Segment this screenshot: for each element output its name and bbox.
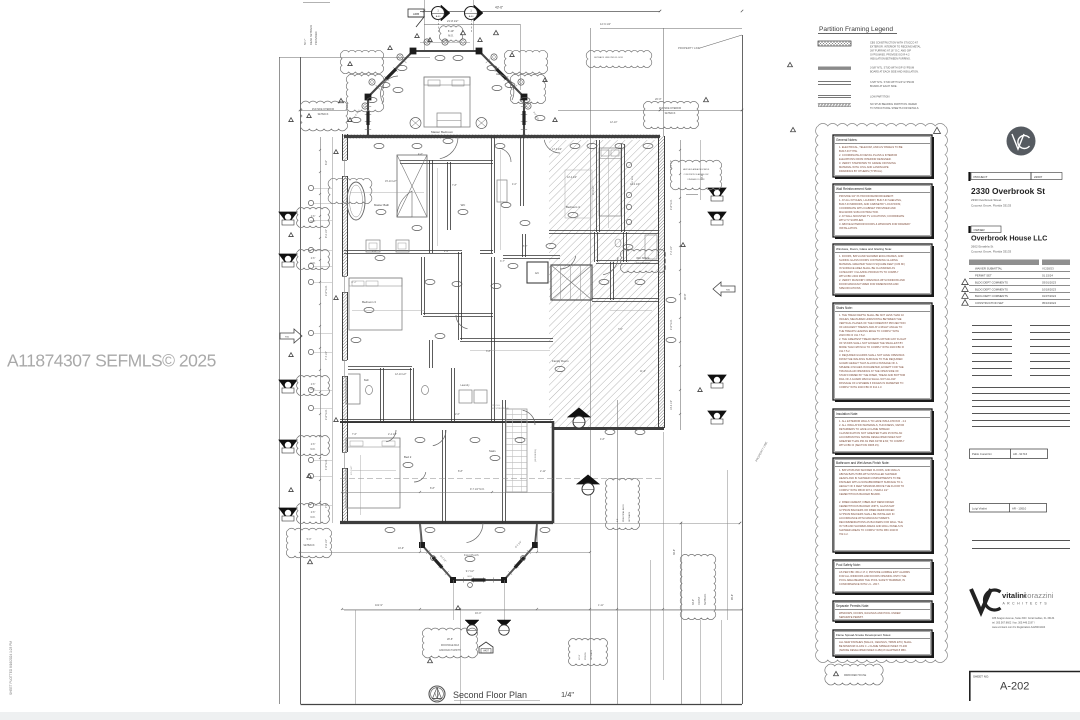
svg-text:SETBACK: SETBACK bbox=[665, 112, 676, 115]
svg-text:M.O.: M.O. bbox=[311, 263, 316, 265]
svg-text:2'-6": 2'-6" bbox=[311, 512, 316, 514]
svg-text:SHOWER AREAS TO COMPLY WITH FB: SHOWER AREAS TO COMPLY WITH FBC 2020 R bbox=[839, 528, 898, 532]
svg-text:BLDG DEPT COMMENTS: BLDG DEPT COMMENTS bbox=[975, 294, 1008, 298]
svg-text:36'-8": 36'-8" bbox=[683, 293, 687, 300]
svg-text:HEIGHT OF 6 FEET MINIMUM ABOVE: HEIGHT OF 6 FEET MINIMUM ABOVE THE FLOOR… bbox=[839, 484, 904, 488]
svg-text:10/18/2023: 10/18/2023 bbox=[1042, 287, 1056, 291]
svg-text:INSTALLATION.: INSTALLATION. bbox=[839, 226, 858, 230]
svg-text:M.O.: M.O. bbox=[311, 449, 316, 451]
svg-text:REC SPACE: REC SPACE bbox=[636, 257, 650, 260]
svg-text:GYPSUM BD. PROVIDE ISO R-4.2: GYPSUM BD. PROVIDE ISO R-4.2 bbox=[870, 54, 910, 57]
svg-text:FINISHED FLOOR: FINISHED FLOOR bbox=[688, 179, 705, 181]
svg-text:12'-9 1/2": 12'-9 1/2" bbox=[600, 22, 611, 26]
svg-text:Overbrook House LLC: Overbrook House LLC bbox=[971, 234, 1047, 243]
svg-text:W/O STRUCTURAL: W/O STRUCTURAL bbox=[491, 407, 510, 410]
svg-text:FRONTAGE MAX: FRONTAGE MAX bbox=[441, 644, 460, 647]
svg-text:CLASSIFICATION NOT GREATER THA: CLASSIFICATION NOT GREATER THAN 25 WITH … bbox=[839, 431, 902, 435]
svg-text:STAIR FORMED BY THE RISER, TR: STAIR FORMED BY THE RISER, TREAD AND BOT… bbox=[839, 373, 905, 377]
svg-text:WITH FBC R (SECTION R905.15).: WITH FBC R (SECTION R905.15). bbox=[839, 443, 880, 447]
svg-text:AR - 91716: AR - 91716 bbox=[1013, 452, 1028, 456]
svg-text:tel. 305.567.8602 / fax. 305: tel. 305.567.8602 / fax. 305.446.2197 / bbox=[992, 622, 1035, 625]
svg-text:CEMENTITIOUS BACKER BOARD.: CEMENTITIOUS BACKER BOARD. bbox=[839, 492, 881, 496]
svg-text:5'-7": 5'-7" bbox=[610, 260, 615, 263]
svg-text:VC/28/23: VC/28/23 bbox=[1042, 267, 1054, 271]
svg-text:Pool Safety Note:: Pool Safety Note: bbox=[836, 563, 861, 567]
svg-text:3/8" FURRING AT 16" O.C. AND G: 3/8" FURRING AT 16" O.C. AND GIP bbox=[870, 50, 911, 53]
svg-text:Separate Permits Note:: Separate Permits Note: bbox=[836, 604, 869, 608]
svg-text:VERTICAL PLANES OF THE FOREMOS: VERTICAL PLANES OF THE FOREMOST PROJECTI… bbox=[839, 321, 906, 325]
svg-text:PROVIDE 3/4" PLYWOOD REINFORCE: PROVIDE 3/4" PLYWOOD REINFORCEMENT: bbox=[839, 194, 894, 198]
svg-text:MATERIAL WITH CIVIL AND LANDSC: MATERIAL WITH CIVIL AND LANDSCAPE bbox=[839, 165, 889, 169]
svg-text:CONSTRUCTION SET: CONSTRUCTION SET bbox=[975, 301, 1004, 305]
svg-text:GYPSUM BACKERS OR FIBER-REINFO: GYPSUM BACKERS OR FIBER-REINFORCED bbox=[839, 508, 894, 512]
svg-text:7'-8": 7'-8" bbox=[452, 184, 457, 187]
svg-text:9'-7 1/2" M.O.: 9'-7 1/2" M.O. bbox=[470, 488, 485, 491]
svg-text:BUILT-IN MIRRORS, AND CABINET: BUILT-IN MIRRORS, AND CABINETRY LOCATION… bbox=[839, 202, 901, 206]
svg-text:2'-6" M.O.: 2'-6" M.O. bbox=[325, 409, 328, 420]
svg-text:2'-4 1/2": 2'-4 1/2" bbox=[388, 433, 397, 436]
svg-text:A R C H I T E C T S: A R C H I T E C T S bbox=[1003, 602, 1048, 606]
svg-text:CATEGORY II GLAZING PRODUCTS T: CATEGORY II GLAZING PRODUCTS TO COMPLY bbox=[839, 270, 899, 274]
svg-text:SETBACK: SETBACK bbox=[628, 511, 631, 522]
svg-text:SETBACK: SETBACK bbox=[303, 544, 315, 547]
svg-text:MATERIAL GREATER THAN 9 SQUARE: MATERIAL GREATER THAN 9 SQUARE FEET (0.8… bbox=[839, 262, 905, 266]
svg-text:30'-0": 30'-0" bbox=[692, 599, 695, 605]
svg-text:M.O.: M.O. bbox=[311, 389, 316, 391]
svg-text:PERMIT SET: PERMIT SET bbox=[975, 274, 992, 278]
svg-text:2. AT WALL MOUNTED TV LOCATI: 2. AT WALL MOUNTED TV LOCATIONS; COORDIN… bbox=[839, 214, 905, 218]
svg-text:01.15/24: 01.15/24 bbox=[1042, 274, 1053, 278]
svg-text:PROJECT: PROJECT bbox=[974, 175, 988, 179]
svg-text:2330 Overbrook Street: 2330 Overbrook Street bbox=[971, 198, 1002, 202]
svg-text:36'-8": 36'-8" bbox=[673, 549, 676, 555]
svg-text:WINDOWS, DOORS, RAILINGS AND P: WINDOWS, DOORS, RAILINGS AND POOL UNDER bbox=[839, 611, 901, 615]
svg-text:6'-6": 6'-6" bbox=[325, 160, 328, 165]
svg-text:A-40: A-40 bbox=[436, 15, 441, 18]
svg-text:Master Bath: Master Bath bbox=[374, 203, 390, 207]
svg-text:SETBACK: SETBACK bbox=[318, 113, 329, 116]
svg-text:Flame Spread-Smoke Development: Flame Spread-Smoke Development Notes: bbox=[836, 633, 891, 637]
svg-text:15'-8 1/2": 15'-8 1/2" bbox=[593, 186, 595, 195]
svg-text:BE MINIMUM CLASS C + FLAME S: BE MINIMUM CLASS C + FLAME SPREAD INDEX … bbox=[839, 644, 908, 648]
svg-text:50'-7": 50'-7" bbox=[303, 38, 307, 45]
svg-text:www.vcmiami.com FL Registratio: www.vcmiami.com FL Registration AA260014… bbox=[992, 626, 1046, 629]
svg-text:1/4": 1/4" bbox=[561, 690, 574, 699]
svg-text:CONFORMANCE WITH U.L. 2017.: CONFORMANCE WITH U.L. 2017. bbox=[839, 582, 880, 586]
svg-text:Bedroom 3: Bedroom 3 bbox=[362, 300, 376, 304]
svg-text:01/07/2024: 01/07/2024 bbox=[1042, 294, 1056, 298]
svg-text:3-5/8" MTL. STUD WITH GIP GYPS: 3-5/8" MTL. STUD WITH GIP GYPSUM bbox=[870, 81, 914, 84]
svg-text:13'-2 1/2": 13'-2 1/2" bbox=[351, 466, 353, 475]
svg-text:Bed 2: Bed 2 bbox=[404, 455, 412, 459]
svg-text:12'-4 1/2": 12'-4 1/2" bbox=[567, 176, 577, 179]
svg-text:BOARD AT EACH SIDE.: BOARD AT EACH SIDE. bbox=[870, 85, 898, 88]
svg-text:2330 Overbrook St: 2330 Overbrook St bbox=[971, 186, 1045, 196]
svg-text:2. VERIFY MASONRY OPENINGS W: 2. VERIFY MASONRY OPENINGS WITH WINDOW A… bbox=[839, 278, 905, 282]
svg-text:1. THE TREAD DEPTH SHALL BE: 1. THE TREAD DEPTH SHALL BE NOT LESS THA… bbox=[839, 313, 904, 317]
svg-text:2'-2": 2'-2" bbox=[444, 250, 449, 253]
svg-text:A-202: A-202 bbox=[1000, 681, 1029, 693]
svg-text:RAIL OF A GUARD WHICH SHALL NO: RAIL OF A GUARD WHICH SHALL NOT ALLOW bbox=[839, 377, 896, 381]
svg-text:1. ELECTRICAL, TELECOM, AND: 1. ELECTRICAL, TELECOM, AND A/V PANELS T… bbox=[839, 145, 903, 149]
svg-text:2ND SIDE INTERIOR: 2ND SIDE INTERIOR bbox=[312, 109, 335, 111]
svg-text:NO STUD BEARING PARTITION. REF: NO STUD BEARING PARTITION. REFER bbox=[870, 103, 917, 106]
svg-text:2'-8" M.O.: 2'-8" M.O. bbox=[670, 199, 673, 210]
svg-text:INSULATION BETWEEN FURRING.: INSULATION BETWEEN FURRING. bbox=[870, 58, 911, 61]
svg-text:22607: 22607 bbox=[1034, 175, 1043, 179]
svg-text:IN SURFACE AREA SHALL BE CLAS: IN SURFACE AREA SHALL BE CLASSIFIED AS bbox=[839, 266, 895, 270]
svg-text:THE TREAD'S LEADING EDGE TO CO: THE TREAD'S LEADING EDGE TO COMPLY WITH bbox=[839, 329, 899, 333]
svg-text:ARB: ARB bbox=[413, 12, 419, 16]
svg-text:1. ALL EXTERIOR WALLS TO HA: 1. ALL EXTERIOR WALLS TO HAVE INSULATION… bbox=[839, 419, 907, 423]
svg-text:REAR SETBACK: REAR SETBACK bbox=[309, 25, 313, 45]
svg-text:28'-8": 28'-8" bbox=[447, 638, 453, 641]
svg-text:12'-10": 12'-10" bbox=[610, 121, 618, 124]
svg-text:PROVIDED: PROVIDED bbox=[314, 31, 318, 45]
svg-text:12'-4 1/2": 12'-4 1/2" bbox=[630, 183, 640, 186]
svg-text:Coconut Grove, Florida 33133: Coconut Grove, Florida 33133 bbox=[971, 250, 1012, 254]
svg-text:16'-0": 16'-0" bbox=[475, 612, 481, 615]
svg-text:(SMOKE DEVELOPED INDEX 0-450): (SMOKE DEVELOPED INDEX 0-450) 8 CHAPTER … bbox=[839, 648, 907, 652]
svg-text:WAIVER SUBMITTAL: WAIVER SUBMITTAL bbox=[975, 267, 1003, 271]
svg-text:ALL NEW FINISHES (WALLS, CEILI: ALL NEW FINISHES (WALLS, CEILINGS, TRIMS… bbox=[839, 640, 913, 644]
svg-text:11'-4": 11'-4" bbox=[351, 282, 357, 284]
svg-text:96'-8": 96'-8" bbox=[731, 594, 734, 600]
svg-text:20'-0": 20'-0" bbox=[655, 97, 662, 101]
svg-text:SHEET NO.: SHEET NO. bbox=[973, 675, 989, 679]
svg-text:3'-7": 3'-7" bbox=[500, 260, 505, 263]
svg-text:8'-8": 8'-8" bbox=[458, 470, 463, 473]
svg-text:2'-3": 2'-3" bbox=[372, 250, 377, 253]
svg-text:DOOR MANUFACTURER FOR DIMENSIO: DOOR MANUFACTURER FOR DIMENSIONS AND bbox=[839, 282, 899, 286]
svg-text:3. ABOVE EXTERIOR DOORS & WI: 3. ABOVE EXTERIOR DOORS & WINDOWS FOR DR… bbox=[839, 222, 911, 226]
svg-text:2'-6" M.O.: 2'-6" M.O. bbox=[325, 285, 328, 296]
svg-text:SEPARATE PERMIT.: SEPARATE PERMIT. bbox=[839, 615, 864, 619]
svg-text:101'-9": 101'-9" bbox=[375, 604, 383, 607]
svg-text:ELEVATIONS FROM INTERIOR DESIG: ELEVATIONS FROM INTERIOR DESIGNER. bbox=[839, 157, 892, 161]
svg-text:2'-6": 2'-6" bbox=[311, 384, 316, 386]
svg-text:3-5/8" MTL. STUD WITH GIP GYPS: 3-5/8" MTL. STUD WITH GIP GYPSUM bbox=[870, 67, 914, 70]
svg-text:6'-10": 6'-10" bbox=[448, 30, 454, 33]
svg-text:BOARD AT EACH SIDE AND INSULAT: BOARD AT EACH SIDE AND INSULATION. bbox=[870, 71, 919, 74]
svg-text:2. COORDINATE AV DETAIL PLAN: 2. COORDINATE AV DETAIL PLANS & INTERIOR bbox=[839, 153, 897, 157]
svg-text:A11874307 SEFMLS© 2025: A11874307 SEFMLS© 2025 bbox=[7, 351, 216, 371]
svg-text:ABOVE BATHTUBS WITH INSTALLED: ABOVE BATHTUBS WITH INSTALLED SHOWER bbox=[839, 472, 897, 476]
svg-text:1. DOORS, BATH AND SHOWER EN: 1. DOORS, BATH AND SHOWER ENCLOSURES, AN… bbox=[839, 254, 904, 258]
svg-text:7'-0": 7'-0" bbox=[618, 328, 623, 331]
svg-text:185 Aragon Avenue, Suite 300: 185 Aragon Avenue, Suite 300 / Coral Gab… bbox=[992, 617, 1055, 620]
svg-text:COORDINATE WITH CABINET PROVID: COORDINATE WITH CABINET PROVIDER AND bbox=[839, 206, 896, 210]
svg-text:SETBACK: SETBACK bbox=[590, 649, 593, 660]
svg-text:16'-9": 16'-9" bbox=[579, 654, 581, 660]
svg-text:PROPERTY LINE: PROPERTY LINE bbox=[678, 46, 700, 50]
svg-text:A-40: A-40 bbox=[469, 15, 474, 18]
svg-text:Pablo Corazzini: Pablo Corazzini bbox=[972, 452, 992, 456]
svg-text:CEMENTITIOUS BACKER UNITS, GLA: CEMENTITIOUS BACKER UNITS, GLASS MAT bbox=[839, 504, 895, 508]
svg-text:NO CHANGE: NO CHANGE bbox=[636, 262, 650, 265]
svg-text:9'-2 1/2": 9'-2 1/2" bbox=[325, 229, 328, 238]
svg-text:corazzini: corazzini bbox=[1024, 591, 1054, 600]
svg-text:Bath: Bath bbox=[364, 379, 370, 382]
svg-text:AR - 10510: AR - 10510 bbox=[1012, 507, 1027, 511]
svg-text:PRINCIPAL BLDG: PRINCIPAL BLDG bbox=[622, 504, 625, 522]
svg-text:General Notes:: General Notes: bbox=[836, 138, 858, 142]
svg-text:TO STRUCTURAL SHEETS FOR DETAI: TO STRUCTURAL SHEETS FOR DETAILS. bbox=[870, 107, 919, 110]
svg-text:OF STAIRS SHALL NOT EXCEED TH: OF STAIRS SHALL NOT EXCEED THE SMALLEST … bbox=[839, 341, 903, 345]
svg-text:EXTERIOR. INTERIOR TO RECEIVE: EXTERIOR. INTERIOR TO RECEIVE METAL bbox=[870, 46, 921, 49]
svg-text:Partition Framing Legend: Partition Framing Legend bbox=[819, 26, 893, 33]
svg-text:M.O.: M.O. bbox=[311, 221, 316, 223]
svg-text:WITH FBC 2402 R308.: WITH FBC 2402 R308. bbox=[839, 274, 866, 278]
svg-text:8'-8": 8'-8" bbox=[430, 487, 435, 490]
svg-text:A407: A407 bbox=[483, 649, 489, 652]
svg-text:2'-6": 2'-6" bbox=[311, 444, 316, 446]
svg-text:SETBACK LINE 2ND FLOOR: SETBACK LINE 2ND FLOOR bbox=[594, 56, 623, 59]
svg-text:Laundry: Laundry bbox=[460, 384, 470, 387]
svg-text:Coconut Grove, Florida 33133: Coconut Grove, Florida 33133 bbox=[971, 204, 1012, 208]
svg-text:Wall Reinforcement Note:: Wall Reinforcement Note: bbox=[836, 187, 872, 191]
svg-text:2. ALL INSULATION MATERIALS,: 2. ALL INSULATION MATERIALS, THICKNESS, … bbox=[839, 423, 904, 427]
svg-text:11'-0": 11'-0" bbox=[640, 370, 646, 373]
svg-text:1. AT ALL KITCHEN, LAUNDRY,: 1. AT ALL KITCHEN, LAUNDRY, BUILT-IN SHE… bbox=[839, 198, 902, 202]
svg-text:Luigi Vitalini: Luigi Vitalini bbox=[972, 507, 987, 511]
svg-text:2'-6": 2'-6" bbox=[311, 216, 316, 218]
svg-text:10'-9": 10'-9" bbox=[398, 547, 404, 550]
svg-text:RECOMMENDATIONS AS BACKERS FOR: RECOMMENDATIONS AS BACKERS FOR WALL TILE bbox=[839, 520, 903, 524]
svg-text:2. FIBER-CEMENT, FIBER-MAT R: 2. FIBER-CEMENT, FIBER-MAT REINFORCED bbox=[839, 500, 894, 504]
svg-text:MORE THAN 3/8 INCH TO COMPLY W: MORE THAN 3/8 INCH TO COMPLY WITH 2020 F… bbox=[839, 345, 904, 349]
svg-text:BUILT-IN TYPE.: BUILT-IN TYPE. bbox=[839, 149, 858, 153]
svg-text:2020 FBC R 311.7.5.2.: 2020 FBC R 311.7.5.2. bbox=[839, 333, 866, 337]
svg-text:WC: WC bbox=[461, 203, 466, 207]
svg-text:2'-6": 2'-6" bbox=[455, 413, 460, 416]
svg-text:DRAWINGS BY OTHERS (TYPICAL).: DRAWINGS BY OTHERS (TYPICAL). bbox=[839, 169, 883, 173]
svg-text:1. BATHTUB AND SHOWER FLOORS: 1. BATHTUB AND SHOWER FLOORS, AND WALLS bbox=[839, 468, 900, 472]
svg-text:RETARDERS TO HAVE A FLAME SPRE: RETARDERS TO HAVE A FLAME SPREAD bbox=[839, 427, 890, 431]
svg-text:COMPLY WITH 2020 FBC R 312.1.3: COMPLY WITH 2020 FBC R 312.1.3. bbox=[839, 385, 882, 389]
svg-text:17'-4 1/2": 17'-4 1/2" bbox=[552, 148, 562, 151]
svg-text:M.O.: M.O. bbox=[311, 517, 316, 519]
svg-text:12'-10 1/2": 12'-10 1/2" bbox=[395, 373, 407, 376]
svg-text:2'-6 1/2": 2'-6 1/2" bbox=[325, 539, 328, 548]
svg-text:2602 Emathla St: 2602 Emathla St bbox=[971, 245, 993, 249]
svg-text:3. VERIFY STEPDOWN TO GRADE: 3. VERIFY STEPDOWN TO GRADE OR PAVING bbox=[839, 161, 896, 165]
svg-text:M.O.: M.O. bbox=[448, 35, 454, 38]
svg-text:2ND SIDE INTERIOR: 2ND SIDE INTERIOR bbox=[659, 108, 682, 110]
svg-text:BLDG DEPT COMMENTS: BLDG DEPT COMMENTS bbox=[975, 287, 1008, 291]
svg-text:PASSAGE OF A SPHERE 6 INCHES I: PASSAGE OF A SPHERE 6 INCHES IN DIAMETER… bbox=[839, 381, 903, 385]
svg-text:Windows, Doors, Glass and Glaz: Windows, Doors, Glass and Glazing Note: bbox=[836, 247, 892, 251]
svg-text:43'-6": 43'-6" bbox=[495, 6, 503, 10]
svg-text:MILLWORK SUB-CONTRACTOR.: MILLWORK SUB-CONTRACTOR. bbox=[839, 210, 879, 214]
svg-text:7'-7 1/2": 7'-7 1/2" bbox=[325, 351, 328, 360]
svg-text:AS PER FBC 454.2.17.3, PROVIDE: AS PER FBC 454.2.17.3, PROVIDE AUDIBLE E… bbox=[839, 570, 910, 574]
svg-text:GYPSUM BACKERS SHALL BE INSTAL: GYPSUM BACKERS SHALL BE INSTALLED IN bbox=[839, 512, 894, 516]
svg-text:HATCHED AREA INDICATES: HATCHED AREA INDICATES bbox=[683, 168, 710, 171]
svg-text:Bathroom and Wet Areas Finish: Bathroom and Wet Areas Finish Note: bbox=[836, 461, 890, 465]
svg-text:3. REQUIRED GUARDS SHALL NOT: 3. REQUIRED GUARDS SHALL NOT HAVE OPENIN… bbox=[839, 353, 905, 357]
svg-text:311.7.5.2.: 311.7.5.2. bbox=[839, 349, 851, 353]
svg-text:2. THE GREATEST TREAD DEPTH: 2. THE GREATEST TREAD DEPTH WITHIN ANY F… bbox=[839, 337, 907, 341]
svg-text:15'-10 1/2": 15'-10 1/2" bbox=[385, 180, 397, 183]
svg-text:GREATER THAN 450 AS PER ASTM E: GREATER THAN 450 AS PER ASTM E 84; TO CO… bbox=[839, 439, 905, 443]
svg-text:SLIDING GLASS DOORS CONTAINING: SLIDING GLASS DOORS CONTAINING GLAZING bbox=[839, 258, 898, 262]
svg-text:CONCRETE SLAB BELOW: CONCRETE SLAB BELOW bbox=[684, 173, 709, 176]
svg-text:4'-8": 4'-8" bbox=[600, 438, 605, 441]
svg-text:Family Room: Family Room bbox=[552, 359, 569, 363]
svg-text:2'-6" M.O.: 2'-6" M.O. bbox=[670, 319, 673, 330]
svg-text:TRIANGULAR OPENINGS AT THE OPE: TRIANGULAR OPENINGS AT THE OPEN SIDE OF bbox=[839, 369, 899, 373]
svg-text:vitalini: vitalini bbox=[1002, 591, 1026, 600]
svg-text:2'-6": 2'-6" bbox=[311, 258, 316, 260]
svg-text:4'-9" M.O.: 4'-9" M.O. bbox=[325, 459, 328, 470]
svg-text:21'-8 1/2": 21'-8 1/2" bbox=[447, 19, 458, 23]
svg-text:5'-0": 5'-0" bbox=[307, 538, 312, 541]
svg-text:4'-0": 4'-0" bbox=[512, 183, 517, 186]
svg-text:MIRRORED HOUSE: MIRRORED HOUSE bbox=[844, 674, 867, 677]
svg-text:Bedroom 4: Bedroom 4 bbox=[566, 205, 580, 209]
svg-text:Master Bedroom: Master Bedroom bbox=[431, 130, 454, 134]
svg-text:FRONT: FRONT bbox=[698, 596, 701, 605]
svg-text:SHEET PLOTTED 8/16/2024 1:23 P: SHEET PLOTTED 8/16/2024 1:23 PM bbox=[9, 641, 13, 695]
svg-text:FOR ALL WINDOWS AND DOORS OPE: FOR ALL WINDOWS AND DOORS OPENING ONTO T… bbox=[839, 574, 907, 578]
svg-text:ENCROACH WIDTH: ENCROACH WIDTH bbox=[439, 649, 461, 652]
svg-text:STD CLG: STD CLG bbox=[491, 405, 500, 407]
svg-text:2'-11": 2'-11" bbox=[540, 470, 546, 473]
svg-text:05/16/2024: 05/16/2024 bbox=[1042, 301, 1056, 305]
svg-text:Stairs Note:: Stairs Note: bbox=[836, 306, 853, 310]
svg-text:OWNER: OWNER bbox=[974, 228, 985, 232]
svg-text:4'-6": 4'-6" bbox=[418, 153, 423, 156]
svg-text:INCHES, MEASURED HORIZONTAL BE: INCHES, MEASURED HORIZONTAL BETWEEN THE bbox=[839, 317, 902, 321]
svg-text:SETBACK: SETBACK bbox=[704, 593, 707, 605]
svg-text:7'-6": 7'-6" bbox=[352, 433, 357, 436]
svg-text:Second Floor Plan: Second Floor Plan bbox=[453, 690, 527, 700]
svg-text:HEADS AND IN SHOWER COMPARTMEN: HEADS AND IN SHOWER COMPARTMENTS TO BE bbox=[839, 476, 901, 480]
svg-text:SPHERE 4 INCHES IN DIAMETER, E: SPHERE 4 INCHES IN DIAMETER, EXCEPT FOR … bbox=[839, 365, 904, 369]
svg-text:PORCH: PORCH bbox=[585, 652, 587, 660]
svg-text:1'-11": 1'-11" bbox=[598, 605, 604, 607]
svg-text:3'-8": 3'-8" bbox=[486, 350, 491, 353]
svg-text:03/01/2023: 03/01/2023 bbox=[1042, 280, 1056, 284]
svg-text:Insulation Note:: Insulation Note: bbox=[836, 412, 858, 416]
svg-text:A/C: A/C bbox=[535, 271, 539, 275]
svg-text:WITH TV SUPPLIER.: WITH TV SUPPLIER. bbox=[839, 218, 864, 222]
svg-text:ACCORDANCE WITH MANUFACTURER'S: ACCORDANCE WITH MANUFACTURER'S bbox=[839, 516, 890, 520]
svg-text:GUARD HEIGHT THAT ALLOW A PASS: GUARD HEIGHT THAT ALLOW A PASSAGE OF A bbox=[839, 361, 898, 365]
svg-text:M.O.: M.O. bbox=[468, 576, 473, 578]
svg-text:9'-7 1/2": 9'-7 1/2" bbox=[466, 571, 475, 573]
svg-text:FROM THE WALKING SURFACE TO TH: FROM THE WALKING SURFACE TO THE REQUIRED bbox=[839, 357, 903, 361]
svg-text:IN TUB AND SHOWER AREAS AND WA: IN TUB AND SHOWER AREAS AND WALL PANELS … bbox=[839, 524, 903, 528]
svg-text:COMPLY WITH FBCR 307.2, OVER A: COMPLY WITH FBCR 307.2, OVER A 1/2" bbox=[839, 488, 888, 492]
svg-text:702.4.2.: 702.4.2. bbox=[839, 532, 849, 536]
svg-text:(16 RISERS): (16 RISERS) bbox=[535, 449, 537, 462]
svg-text:BLDG DEPT COMMENTS: BLDG DEPT COMMENTS bbox=[975, 280, 1008, 284]
svg-text:Stairs: Stairs bbox=[489, 449, 496, 453]
svg-text:FINISHED WITH A NONABSORBENT S: FINISHED WITH A NONABSORBENT SURFACE TO … bbox=[839, 480, 903, 484]
svg-text:POOL AREA BEHIND THE POOL SA: POOL AREA BEHIND THE POOL SAFETY BARRIER… bbox=[839, 578, 905, 582]
svg-text:7'-4 1/2": 7'-4 1/2" bbox=[670, 246, 673, 255]
svg-text:OF ADJACENT TREADS AND AT A RI: OF ADJACENT TREADS AND AT A RIGHT ANGLE … bbox=[839, 325, 902, 329]
svg-text:LOW PARTITION: LOW PARTITION bbox=[870, 96, 890, 99]
svg-text:ACCOMPANYING SMOKE DEVELOPED I: ACCOMPANYING SMOKE DEVELOPED INDEX NOT bbox=[839, 435, 902, 439]
svg-text:5'-7": 5'-7" bbox=[523, 246, 528, 248]
svg-text:SPECIFICATIONS.: SPECIFICATIONS. bbox=[839, 286, 861, 290]
svg-text:CBS CONSTRUCTION WITH STUCCO A: CBS CONSTRUCTION WITH STUCCO AT bbox=[870, 42, 918, 45]
svg-text:10'-2 1/2": 10'-2 1/2" bbox=[670, 400, 673, 410]
